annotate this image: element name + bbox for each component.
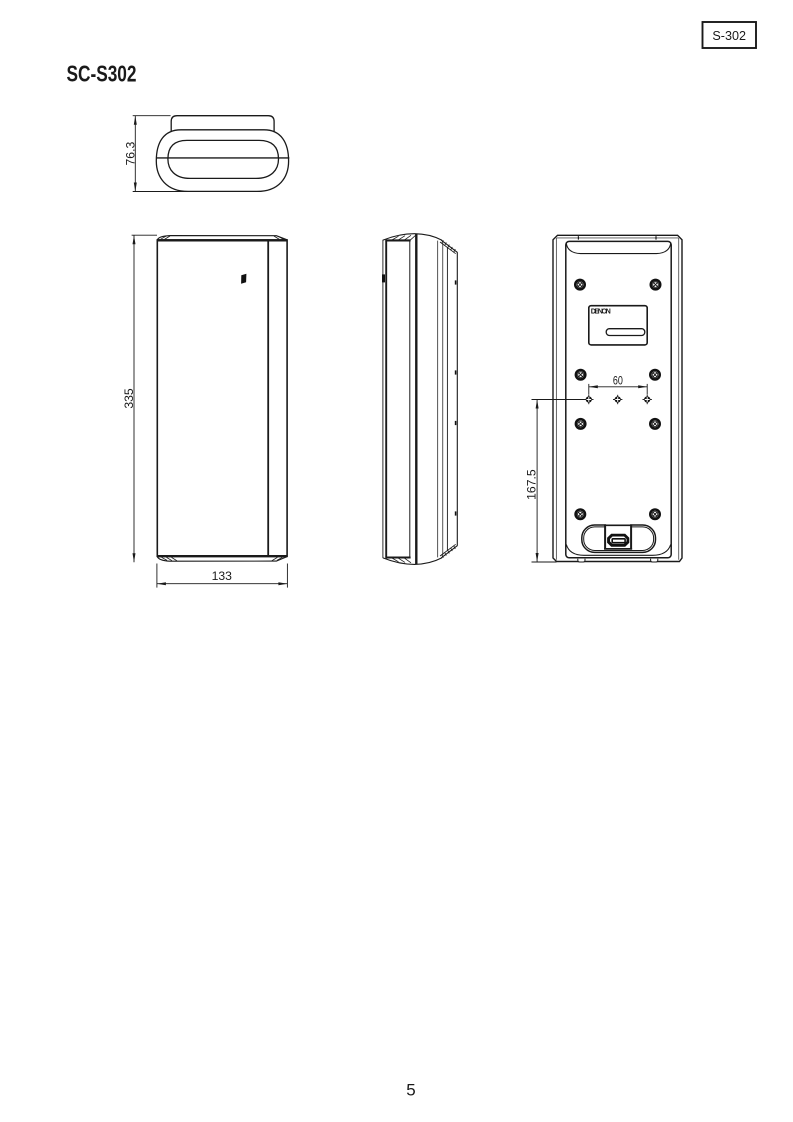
svg-text:SC-S302: SC-S302 xyxy=(67,61,137,87)
svg-text:133: 133 xyxy=(212,569,233,583)
svg-text:60: 60 xyxy=(613,374,623,388)
svg-text:DENON: DENON xyxy=(591,307,611,316)
svg-text:76.3: 76.3 xyxy=(123,142,137,166)
svg-text:335: 335 xyxy=(122,388,136,409)
svg-text:5: 5 xyxy=(406,1080,415,1099)
svg-text:167.5: 167.5 xyxy=(525,469,539,500)
svg-text:S-302: S-302 xyxy=(712,29,746,43)
